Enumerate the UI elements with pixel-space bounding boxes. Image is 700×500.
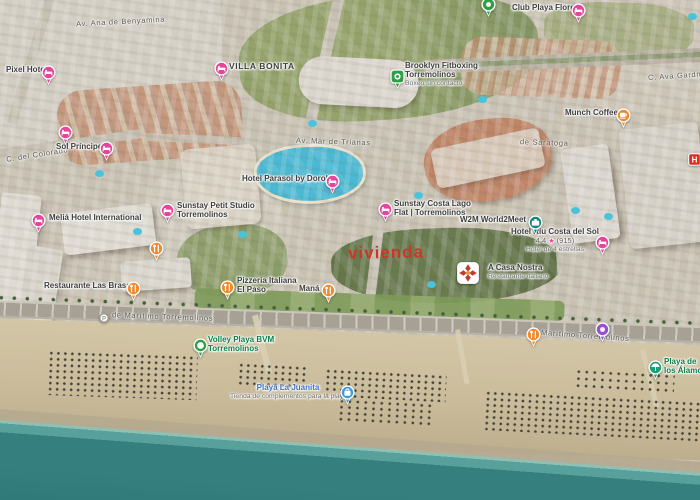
poi-label-pizzeria-label[interactable]: Pizzeria ItalianaEl Paso [237, 277, 297, 295]
map-poi-layer: HPPixel HotelSol PríncipeVILLA BONITAClu… [0, 0, 700, 500]
street-ava-gardner: C. Ava Gardner [648, 69, 700, 82]
map-pin-club-playa-flores[interactable] [571, 3, 586, 23]
map-pin-hotel-riu[interactable] [595, 235, 610, 255]
poi-label-line: los Álamos [664, 367, 700, 376]
poi-label-line: VILLA BONITA [229, 62, 295, 72]
poi-label-line: Torremolinos [405, 71, 478, 80]
map-pin-melia-hotel[interactable] [31, 213, 46, 233]
street-trianas: Av. Mar de Trianas [296, 136, 371, 148]
map-pin-top-edge-poi[interactable] [481, 0, 496, 17]
poi-label-line: Torremolinos [208, 345, 274, 354]
map-pin-hotel-parasol[interactable] [325, 174, 340, 194]
poi-label-mana-label[interactable]: Maná [299, 285, 319, 294]
poi-label-line: Munch Coffee [565, 109, 618, 118]
map-pin-a-casa-nostra[interactable] [456, 261, 480, 285]
poi-label-volley-label[interactable]: Volley Playa BVMTorremolinos [208, 336, 274, 354]
poi-label-line: Torremolinos [177, 211, 255, 220]
poi-label-line: A Casa Nostra [488, 264, 548, 273]
poi-label-w2m-label[interactable]: W2M World2Meet [460, 216, 526, 225]
poi-label-line: Tienda de complementos para la playa [230, 393, 346, 401]
map-pin-purple-poi[interactable] [595, 322, 610, 342]
poi-label-line: Restaurante italiano [488, 273, 548, 281]
svg-text:P: P [102, 316, 106, 322]
poi-label-line: 4.4 ★ (915) [510, 237, 600, 246]
poi-label-las-brasas-label[interactable]: Restaurante Las Brasas [44, 282, 135, 291]
map-pin-unnamed-hotel[interactable] [58, 125, 73, 145]
poi-label-line: Hotel Parasol by Dorobe [242, 175, 335, 184]
map-pin-restaurant-unnamed[interactable] [149, 241, 164, 261]
poi-label-juanita-label[interactable]: Playa La JuanitaTienda de complementos p… [230, 384, 346, 401]
map-pin-pixel-hotel[interactable] [41, 65, 56, 85]
map-pin-playa-la-juanita[interactable] [340, 385, 355, 405]
map-pin-w2m-world2meet[interactable] [528, 215, 543, 235]
poi-label-line: Meliá Hotel International [49, 214, 141, 223]
street-benyamina: Av. Ana de Benyamina [76, 15, 166, 29]
street-paseo-maritimo-west: de Marítimo Torremolinos [112, 310, 214, 323]
poi-label-line: El Paso [237, 286, 297, 295]
map-pin-playa-los-alamos[interactable] [648, 360, 663, 380]
map-pin-pizzeria-el-paso[interactable] [220, 280, 235, 300]
poi-label-line: Club Playa Flores [512, 4, 579, 13]
map-pin-paseo-badge[interactable]: P [99, 313, 109, 323]
map-pin-sol-principe[interactable] [99, 141, 114, 161]
map-pin-sunstay-costa-lago[interactable] [378, 202, 393, 222]
poi-label-villa-bonita-label[interactable]: VILLA BONITA [229, 62, 295, 72]
poi-label-melia-label[interactable]: Meliá Hotel International [49, 214, 141, 223]
poi-label-line: Playa La Juanita [230, 384, 346, 393]
poi-label-casa-nostra-label[interactable]: A Casa NostraRestaurante italiano [488, 264, 548, 281]
street-paseo-maritimo-east: Marítimo Torremolinos [541, 328, 630, 343]
svg-text:H: H [691, 155, 697, 164]
map-pin-sunstay-petit[interactable] [160, 203, 175, 223]
poi-label-club-playa-flores-label[interactable]: Club Playa Flores [512, 4, 579, 13]
poi-label-brooklyn-label[interactable]: Brooklyn FitboxingTorremolinosBoxeo sin … [405, 62, 478, 88]
poi-label-line: Maná [299, 285, 319, 294]
map-pin-mana[interactable] [321, 283, 336, 303]
map-pin-brooklyn-fitboxing[interactable] [390, 69, 405, 89]
poi-label-munch-coffee-label[interactable]: Munch Coffee [565, 109, 618, 118]
street-saratoga: de Saratoga [520, 137, 569, 148]
poi-label-alamos-label[interactable]: Playa delos Álamos [664, 358, 700, 376]
rating-star-icon: ★ [548, 238, 554, 245]
poi-label-line: Boxeo sin contacto [405, 80, 478, 88]
map-pin-hospital[interactable]: H [688, 153, 700, 166]
map-pin-munch-coffee[interactable] [616, 108, 631, 128]
poi-label-line: Hotel de 4 estrellas [510, 246, 600, 254]
poi-label-line: Restaurante Las Brasas [44, 282, 135, 291]
poi-label-riu-label[interactable]: Hotel Riu Costa del Sol4.4 ★ (915)Hotel … [510, 228, 600, 253]
poi-label-parasol-label[interactable]: Hotel Parasol by Dorobe [242, 175, 335, 184]
poi-label-sunstay-petit-label[interactable]: Sunstay Petit StudioTorremolinos [177, 202, 255, 220]
aerial-map-canvas[interactable]: HPPixel HotelSol PríncipeVILLA BONITAClu… [0, 0, 700, 500]
vivienda-label[interactable]: vivienda [348, 242, 424, 263]
map-pin-las-brasas[interactable] [126, 281, 141, 301]
map-pin-volley-playa[interactable] [193, 338, 208, 358]
map-pin-villa-bonita[interactable] [214, 61, 229, 81]
poi-label-line: W2M World2Meet [460, 216, 526, 225]
map-pin-maritimo-restaurant[interactable] [526, 327, 541, 347]
